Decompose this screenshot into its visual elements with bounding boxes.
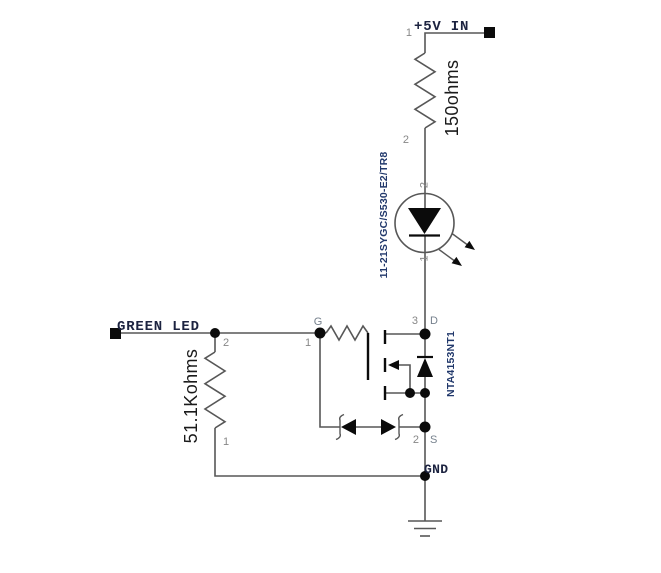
q1-drain-number: 3: [412, 315, 418, 327]
led-part-number: 11-21SYGC/S530-E2/TR8: [378, 152, 390, 279]
wire-gate-esd: [320, 333, 340, 427]
led-arrow-1-shaft: [452, 234, 467, 245]
ground-symbol: [408, 521, 442, 536]
led-arrow-2-shaft: [439, 250, 454, 261]
junction-gate: [315, 328, 326, 339]
resistor-r1-zigzag: [415, 53, 435, 128]
body-diode-triangle: [417, 358, 433, 377]
resistor-r1: 1 2 150ohms: [403, 27, 462, 146]
led-driver-schematic: 1 2 150ohms 2 1 11-21SYGC/S530-E2/TR8: [0, 0, 661, 568]
schematic-canvas: 1 2 150ohms 2 1 11-21SYGC/S530-E2/TR8: [0, 0, 661, 568]
led-light-arrows: [439, 234, 475, 267]
vcc-port-terminal: [484, 27, 495, 38]
mosfet-body-arrow: [388, 360, 399, 370]
r1-pin2-number: 2: [403, 134, 409, 146]
junction-input-r2: [210, 328, 220, 338]
led-d1: 2 1 11-21SYGC/S530-E2/TR8: [378, 152, 475, 279]
wire-r2-gnd: [215, 428, 425, 476]
gate-resistor-zigzag: [326, 326, 368, 340]
vcc-net-label: +5V IN: [414, 19, 469, 35]
q1-source-number: 2: [413, 434, 419, 446]
r2-value-label: 51.1Kohms: [181, 349, 201, 444]
zener-right-triangle: [381, 419, 396, 435]
input-net-label: GREEN LED: [117, 319, 200, 335]
resistor-r2-zigzag: [205, 352, 225, 428]
led-diode-triangle: [408, 208, 441, 234]
q1-drain-name: D: [430, 315, 438, 327]
wires: [121, 33, 484, 521]
q1-gate-number: 1: [305, 337, 311, 349]
r2-pin2-number: 2: [223, 337, 229, 349]
led-arrow-1-head: [465, 241, 475, 250]
led-arrow-2-head: [452, 257, 462, 266]
gnd-net-label: GND: [424, 462, 448, 477]
led-pin1-number: 1: [419, 255, 431, 261]
resistor-r2: 2 1 51.1Kohms: [181, 337, 229, 448]
q1-part-number: NTA4153NT1: [445, 331, 457, 397]
junction-source-stub: [420, 388, 430, 398]
r1-value-label: 150ohms: [442, 60, 462, 137]
led-pin2-number: 2: [419, 182, 431, 188]
r2-pin1-number: 1: [223, 436, 229, 448]
q1-source-name: S: [430, 434, 437, 446]
junction-source: [420, 422, 431, 433]
zener-left-triangle: [341, 419, 356, 435]
wire-vcc: [425, 33, 484, 53]
junction-drain: [420, 329, 431, 340]
junction-body-source: [405, 388, 415, 398]
q1-gate-name: G: [314, 316, 323, 328]
r1-pin1-number: 1: [406, 27, 412, 39]
